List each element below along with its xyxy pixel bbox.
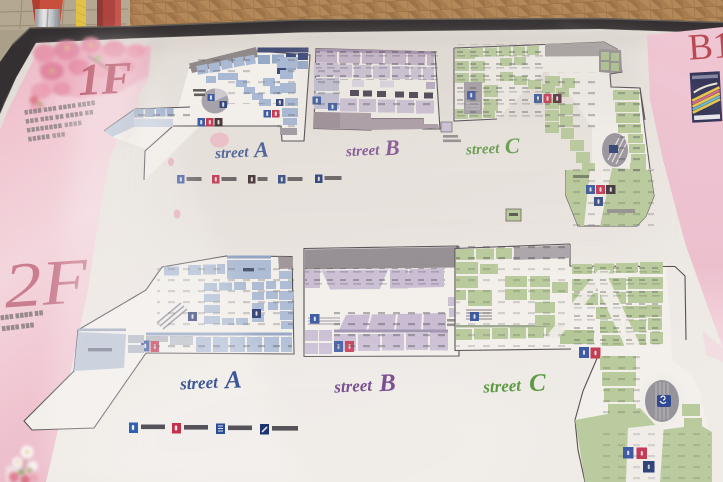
svg-text:street: street: [333, 376, 374, 397]
svg-text:A: A: [222, 366, 242, 394]
svg-text:B: B: [377, 369, 396, 397]
svg-text:street: street: [179, 373, 220, 394]
svg-text:street: street: [482, 376, 523, 397]
svg-text:C: C: [528, 369, 546, 397]
